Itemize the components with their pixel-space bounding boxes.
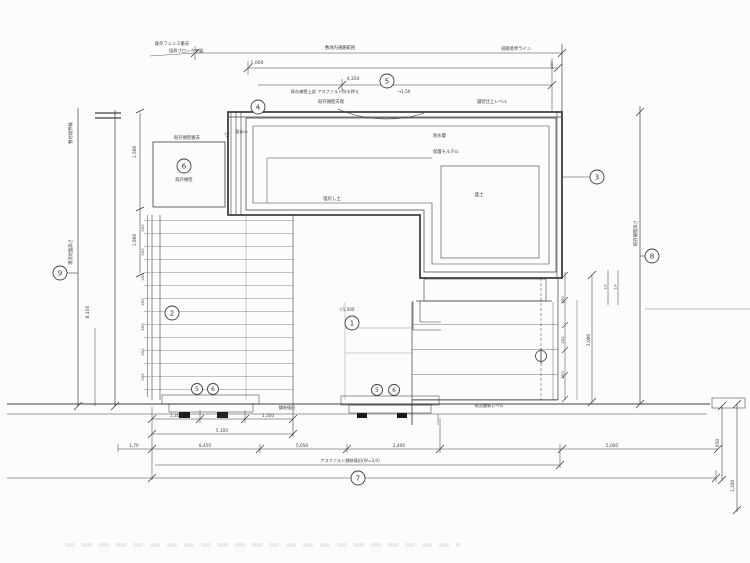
callout-number: 4	[256, 103, 261, 112]
callout-bubble: 9	[53, 266, 67, 280]
annotation-label: 既存擁壁	[175, 176, 193, 183]
callout-bubble: 6	[177, 159, 191, 173]
callout-number: 8	[650, 252, 655, 261]
callout-number: 3	[595, 173, 600, 182]
annotation-label: 舗装仕上レベル	[477, 98, 508, 105]
annotation-label: 既存フェンス撤去	[155, 40, 190, 47]
annotation-label: 250	[140, 298, 145, 306]
annotation-label: 保護モルタル	[433, 148, 459, 155]
annotation-label: 3,000	[586, 334, 592, 347]
annotation-label: 道路境界ライン	[501, 45, 531, 52]
annotation-label: 1,70	[129, 443, 139, 448]
annotation-label: 敷地境界線	[67, 122, 74, 144]
callout-bubble: 5	[372, 385, 383, 396]
callout-number: 7	[356, 474, 361, 483]
annotation-label: 1,900	[132, 234, 138, 247]
slab-inner-step	[267, 158, 432, 203]
annotation-label: 1,350	[170, 413, 183, 419]
callout-number: 6	[211, 387, 215, 393]
annotation-label: 250	[140, 273, 145, 281]
annotation-label: 防水層	[433, 132, 446, 139]
annotation-label: 1,350	[216, 413, 229, 419]
callout-bubble: 7	[351, 471, 365, 485]
callout-bubble: 1	[345, 316, 359, 330]
annotation-label: 250	[140, 323, 145, 331]
annotation-label: 8,100	[85, 305, 91, 318]
annotation-label: 250	[140, 373, 145, 381]
annotation-label: 1,100	[730, 480, 736, 493]
leg-inner-core	[441, 166, 539, 258]
callout-number: 2	[170, 309, 175, 318]
callout-number: 6	[392, 388, 396, 394]
annotation-label: ▽1,500	[339, 307, 355, 312]
annotation-label: 5,050	[296, 443, 309, 449]
callout-number: 9	[58, 269, 63, 278]
annotation-label: 1,000	[251, 60, 264, 66]
callout-number: 1	[350, 319, 355, 328]
annotation-label: 既存擁壁天端	[318, 98, 344, 105]
annotation-label: 8,450	[199, 443, 212, 449]
callout-bubble: 2	[165, 306, 179, 320]
annotation-label: 舗装復旧	[279, 404, 296, 411]
callout-bubble: 6	[389, 385, 400, 396]
annotation-label: T.P	[603, 284, 608, 291]
callout-bubble: 3	[590, 170, 604, 184]
annotation-label: 敷地内通路範囲	[325, 44, 355, 51]
annotation-label: →1,50	[398, 89, 411, 94]
callout-bubble: 6	[208, 384, 219, 395]
scanned-drawing-page: 既存フェンス撤去境界ブロック天端敷地内通路範囲道路境界ライン1,0004,350…	[0, 0, 750, 563]
callout-number: 6	[182, 162, 187, 171]
annotation-label: 4,350	[347, 76, 360, 82]
annotation-label: 250	[140, 224, 145, 232]
left-wall-layers	[231, 112, 241, 215]
callout-number: 5	[195, 387, 199, 393]
callout-number: 5	[385, 77, 390, 86]
annotation-label: 5,100	[216, 428, 229, 434]
ground-lines	[7, 309, 750, 414]
annotation-label: 1,350	[262, 413, 275, 419]
annotation-label: 190	[549, 61, 554, 69]
annotation-label: 250	[560, 296, 565, 304]
annotation-label: 650	[715, 439, 721, 447]
callout-number: 5	[375, 388, 379, 394]
annotation-label: 1,500	[132, 146, 138, 159]
callout-bubble: 8	[645, 249, 659, 263]
right-grid-base	[345, 278, 558, 425]
annotation-label: 2,400	[393, 443, 406, 449]
pavement-strip-right	[712, 398, 745, 408]
callout-bubble: 4	[251, 100, 265, 114]
section-drawing: 既存フェンス撤去境界ブロック天端敷地内通路範囲道路境界ライン1,0004,350…	[0, 0, 750, 563]
callout-bubble: 5	[380, 74, 394, 88]
annotation-label: 既存擁壁上部 アスファルト防水押え	[291, 88, 359, 95]
annotation-label: T.P	[613, 284, 618, 291]
callout-bubble: 5	[192, 384, 203, 395]
annotation-label: 250	[560, 371, 565, 379]
annotation-label: 250	[140, 348, 145, 356]
annotation-label: 5,000	[606, 443, 619, 449]
annotation-label: 250	[140, 248, 145, 256]
annotation-label: 現況地盤高さ	[67, 239, 74, 265]
annotation-label: 現況舗装レベル	[474, 402, 503, 409]
annotation-label: 境界ブロック天端	[169, 48, 204, 55]
annotation-label: 既存擁壁高さ	[632, 220, 639, 246]
annotation-label: ▽	[225, 131, 230, 139]
annotation-label: 既存擁壁撤去	[174, 134, 200, 141]
annotation-label: 盛土	[475, 191, 484, 198]
slab-inner-offset	[253, 126, 549, 264]
existing-wall-demolition	[153, 142, 225, 207]
annotation-label: アスファルト舗装復旧(W=3,0)	[320, 457, 380, 464]
annotation-label: 250	[560, 336, 565, 344]
annotation-label: 埋戻し土	[323, 195, 341, 202]
annotation-label: 既存GL	[236, 129, 250, 134]
